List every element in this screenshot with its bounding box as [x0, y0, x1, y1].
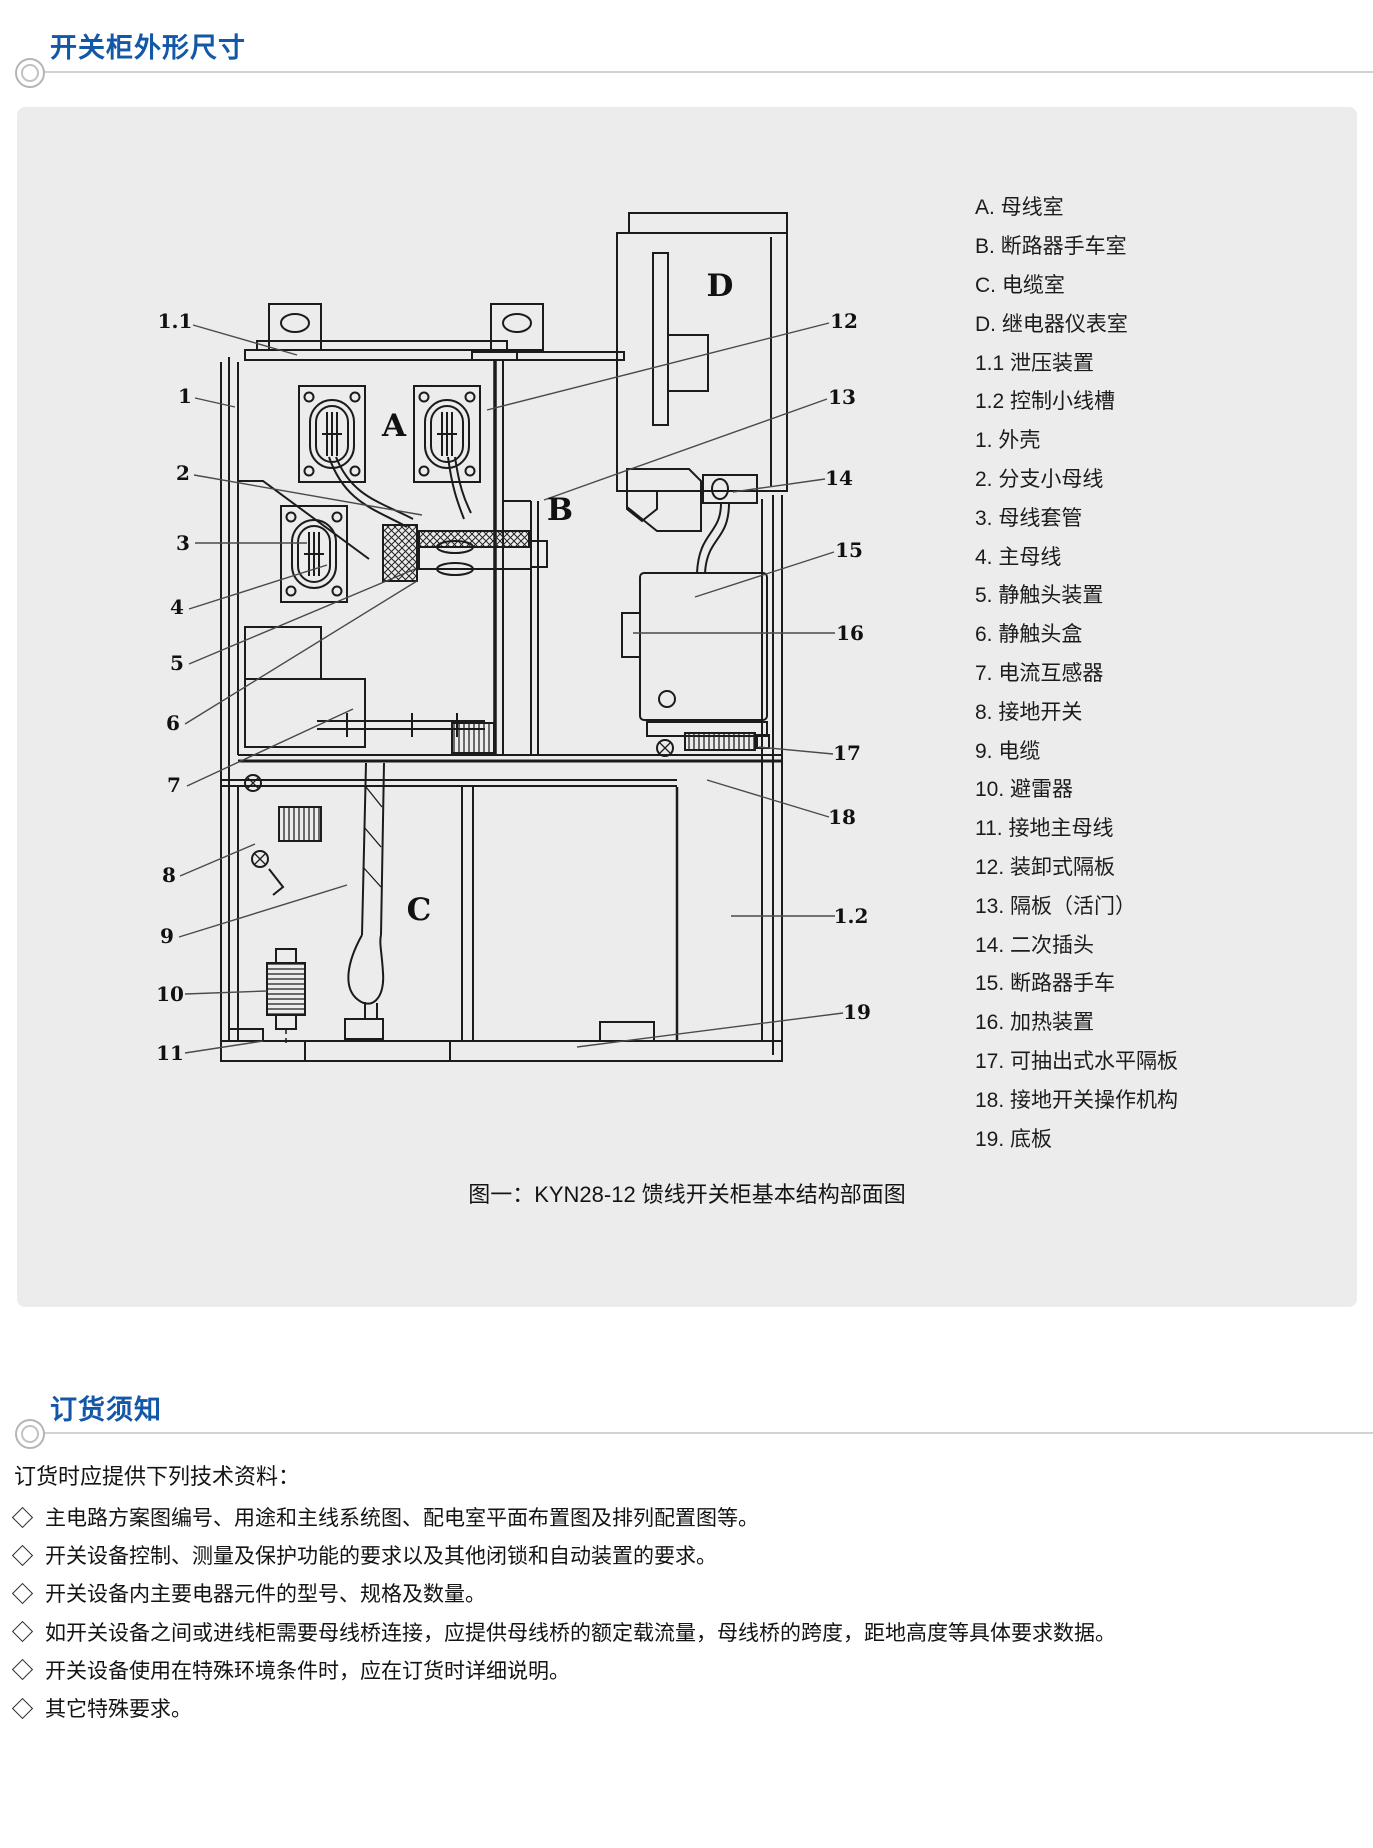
- legend-item: 8. 接地开关: [975, 691, 1350, 730]
- callout-label: 18: [828, 805, 856, 829]
- legend-item: B. 断路器手车室: [975, 226, 1350, 265]
- list-item: 主电路方案图编号、用途和主线系统图、配电室平面布置图及排列配置图等。: [12, 1498, 1362, 1536]
- legend-item: 3. 母线套管: [975, 497, 1350, 536]
- section-title-outline: 开关柜外形尺寸: [50, 26, 246, 65]
- section-title-ordering: 订货须知: [50, 1388, 162, 1427]
- callout-label: 16: [836, 621, 864, 645]
- callout-label: 6: [166, 711, 180, 735]
- callout-label: 4: [170, 595, 184, 619]
- list-item: 开关设备内主要电器元件的型号、规格及数量。: [12, 1574, 1362, 1612]
- parts-legend: A. 母线室 B. 断路器手车室 C. 电缆室 D. 继电器仪表室 1.1 泄压…: [975, 187, 1350, 1157]
- callout-label: 1: [178, 384, 192, 408]
- legend-item: 7. 电流互感器: [975, 653, 1350, 692]
- callout-label: 11: [156, 1041, 184, 1065]
- diamond-bullet-icon: [12, 1697, 33, 1718]
- section-divider-line: [30, 71, 1373, 73]
- compartment-letter-d: D: [707, 268, 734, 304]
- figure-caption: 图一：KYN28-12 馈线开关柜基本结构部面图: [17, 1177, 1357, 1209]
- callout-label: 13: [828, 385, 856, 409]
- callout-label: 3: [176, 531, 190, 555]
- list-item-text: 其它特殊要求。: [45, 1693, 192, 1723]
- list-item-text: 如开关设备之间或进线柜需要母线桥连接，应提供母线桥的额定载流量，母线桥的跨度，距…: [45, 1617, 1116, 1647]
- legend-item: 4. 主母线: [975, 536, 1350, 575]
- list-item-text: 主电路方案图编号、用途和主线系统图、配电室平面布置图及排列配置图等。: [45, 1502, 759, 1532]
- legend-item: 5. 静触头装置: [975, 575, 1350, 614]
- legend-item: D. 继电器仪表室: [975, 303, 1350, 342]
- legend-item: 13. 隔板（活门）: [975, 885, 1350, 924]
- list-item-text: 开关设备内主要电器元件的型号、规格及数量。: [45, 1578, 486, 1608]
- legend-item: 1.2 控制小线槽: [975, 381, 1350, 420]
- legend-item: 2. 分支小母线: [975, 459, 1350, 498]
- callout-label: 5: [170, 651, 184, 675]
- callout-label: 8: [162, 863, 176, 887]
- legend-item: 11. 接地主母线: [975, 808, 1350, 847]
- callout-label: 1.2: [834, 904, 869, 928]
- legend-item: 6. 静触头盒: [975, 614, 1350, 653]
- legend-item: 16. 加热装置: [975, 1002, 1350, 1041]
- callout-label: 15: [835, 538, 863, 562]
- diamond-bullet-icon: [12, 1621, 33, 1642]
- diamond-bullet-icon: [12, 1659, 33, 1680]
- callout-label: 12: [830, 309, 858, 333]
- callout-label: 14: [825, 466, 853, 490]
- list-item-text: 开关设备控制、测量及保护功能的要求以及其他闭锁和自动装置的要求。: [45, 1540, 717, 1570]
- legend-item: 17. 可抽出式水平隔板: [975, 1041, 1350, 1080]
- callout-label: 7: [167, 773, 181, 797]
- section-marker-icon: [15, 1419, 45, 1449]
- figure-panel: A B C D 1.1 1 2 3 4 5 6 7 8 9 10 11 12 1…: [17, 107, 1357, 1307]
- diamond-bullet-icon: [12, 1583, 33, 1604]
- list-item-text: 开关设备使用在特殊环境条件时，应在订货时详细说明。: [45, 1655, 570, 1685]
- section-divider-line: [30, 1432, 1373, 1434]
- legend-item: 18. 接地开关操作机构: [975, 1079, 1350, 1118]
- diamond-bullet-icon: [12, 1545, 33, 1566]
- page: 开关柜外形尺寸: [0, 0, 1373, 1848]
- list-item: 开关设备使用在特殊环境条件时，应在订货时详细说明。: [12, 1651, 1362, 1689]
- diamond-bullet-icon: [12, 1506, 33, 1527]
- ordering-intro: 订货时应提供下列技术资料：: [14, 1459, 300, 1491]
- callout-label: 10: [156, 982, 184, 1006]
- section-marker-icon: [15, 58, 45, 88]
- legend-item: 9. 电缆: [975, 730, 1350, 769]
- callout-label: 17: [833, 741, 861, 765]
- legend-item: 14. 二次插头: [975, 924, 1350, 963]
- legend-item: 12. 装卸式隔板: [975, 847, 1350, 886]
- callout-label: 9: [160, 924, 174, 948]
- legend-item: 15. 断路器手车: [975, 963, 1350, 1002]
- callout-label: 19: [843, 1000, 871, 1024]
- compartment-letter-b: B: [547, 492, 573, 528]
- legend-item: 1. 外壳: [975, 420, 1350, 459]
- ordering-list: 主电路方案图编号、用途和主线系统图、配电室平面布置图及排列配置图等。 开关设备控…: [12, 1498, 1362, 1727]
- legend-item: 19. 底板: [975, 1118, 1350, 1157]
- callout-label: 1.1: [158, 309, 193, 333]
- legend-item: 1.1 泄压装置: [975, 342, 1350, 381]
- legend-item: A. 母线室: [975, 187, 1350, 226]
- list-item: 开关设备控制、测量及保护功能的要求以及其他闭锁和自动装置的要求。: [12, 1536, 1362, 1574]
- callout-leader-lines: [179, 323, 843, 1053]
- list-item: 其它特殊要求。: [12, 1689, 1362, 1727]
- compartment-letter-a: A: [382, 408, 406, 444]
- legend-item: C. 电缆室: [975, 265, 1350, 304]
- compartment-letter-c: C: [407, 892, 432, 928]
- callout-label: 2: [176, 461, 190, 485]
- legend-item: 10. 避雷器: [975, 769, 1350, 808]
- list-item: 如开关设备之间或进线柜需要母线桥连接，应提供母线桥的额定载流量，母线桥的跨度，距…: [12, 1613, 1362, 1651]
